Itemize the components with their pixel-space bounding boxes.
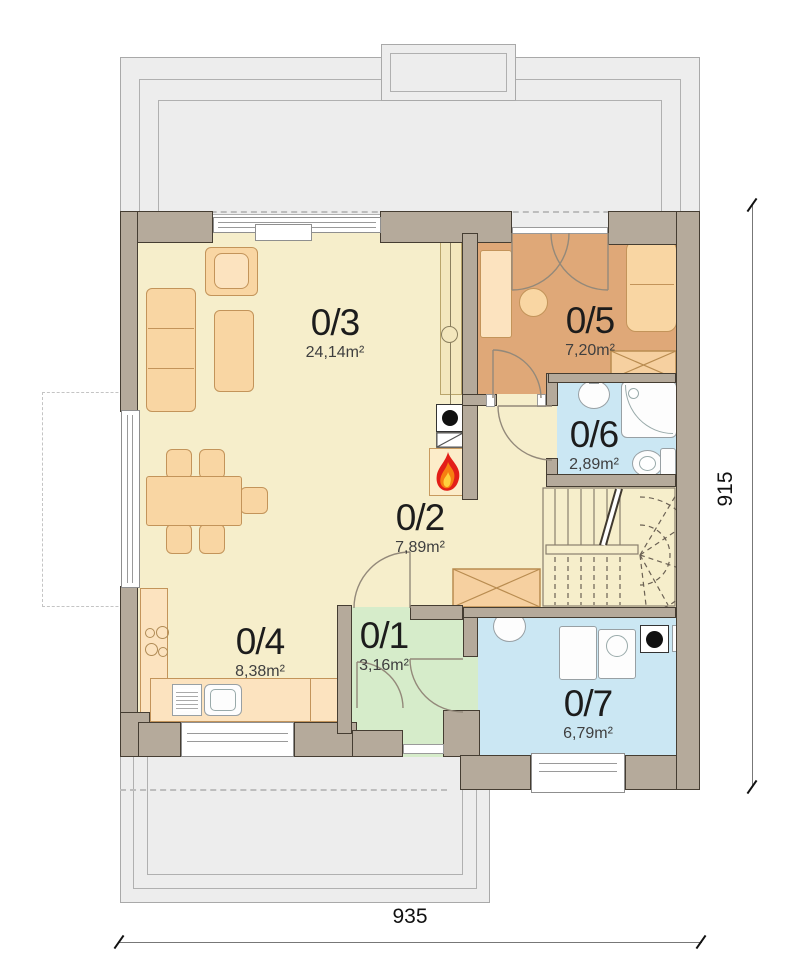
room-area: 24,14m² bbox=[275, 343, 395, 362]
room-label-0-7: 0/7 6,79m² bbox=[528, 684, 648, 743]
room-id: 0/7 bbox=[528, 684, 648, 724]
door-swings bbox=[0, 0, 800, 978]
room-area: 8,38m² bbox=[200, 662, 320, 681]
room-label-0-3: 0/3 24,14m² bbox=[275, 303, 395, 362]
floor-plan: 0/3 24,14m² 0/5 7,20m² 0/6 2,89m² 0/2 7,… bbox=[0, 0, 800, 978]
room-label-0-1: 0/1 3,16m² bbox=[324, 616, 444, 675]
room-id: 0/2 bbox=[360, 498, 480, 538]
room-id: 0/3 bbox=[275, 303, 395, 343]
dimension-right: 915 bbox=[714, 205, 758, 787]
room-label-0-2: 0/2 7,89m² bbox=[360, 498, 480, 557]
dimension-line bbox=[752, 205, 753, 787]
room-area: 7,20m² bbox=[530, 341, 650, 360]
room-area: 2,89m² bbox=[534, 455, 654, 474]
room-label-0-5: 0/5 7,20m² bbox=[530, 301, 650, 360]
room-id: 0/5 bbox=[530, 301, 650, 341]
room-area: 7,89m² bbox=[360, 538, 480, 557]
dimension-bottom: 935 bbox=[118, 905, 702, 950]
dimension-value: 935 bbox=[118, 905, 702, 929]
room-label-0-4: 0/4 8,38m² bbox=[200, 622, 320, 681]
room-area: 3,16m² bbox=[324, 656, 444, 675]
dimension-line bbox=[118, 942, 702, 943]
room-label-0-6: 0/6 2,89m² bbox=[534, 415, 654, 474]
room-id: 0/6 bbox=[534, 415, 654, 455]
room-area: 6,79m² bbox=[528, 724, 648, 743]
dimension-value: 915 bbox=[714, 469, 738, 509]
room-id: 0/4 bbox=[200, 622, 320, 662]
room-id: 0/1 bbox=[324, 616, 444, 656]
